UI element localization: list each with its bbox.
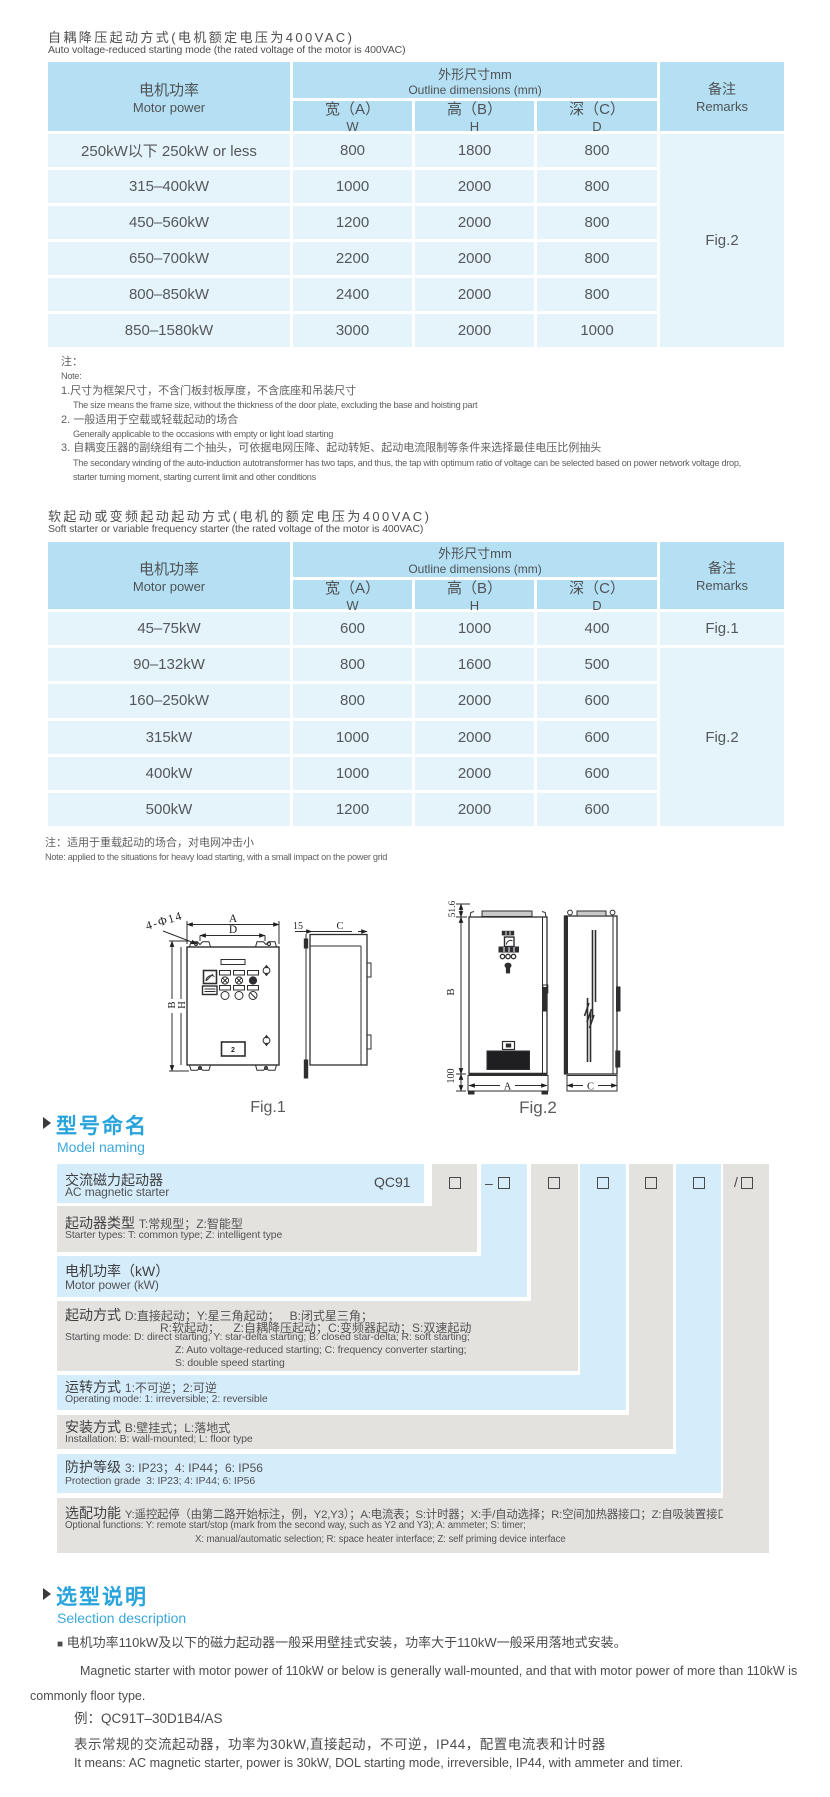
svg-text:2: 2 xyxy=(231,1047,235,1054)
svg-text:Fig.1: Fig.1 xyxy=(250,1099,286,1116)
svg-text:4-Φ14: 4-Φ14 xyxy=(144,908,185,933)
svg-text:D: D xyxy=(229,924,237,936)
svg-text:100: 100 xyxy=(446,1069,457,1084)
svg-text:15: 15 xyxy=(293,921,303,932)
svg-text:A: A xyxy=(504,1082,512,1093)
svg-text:Fig.2: Fig.2 xyxy=(519,1098,557,1117)
svg-text:C: C xyxy=(336,921,343,932)
svg-text:B: B xyxy=(446,988,457,995)
svg-text:51.6: 51.6 xyxy=(448,900,458,917)
svg-text:C: C xyxy=(587,1082,594,1093)
